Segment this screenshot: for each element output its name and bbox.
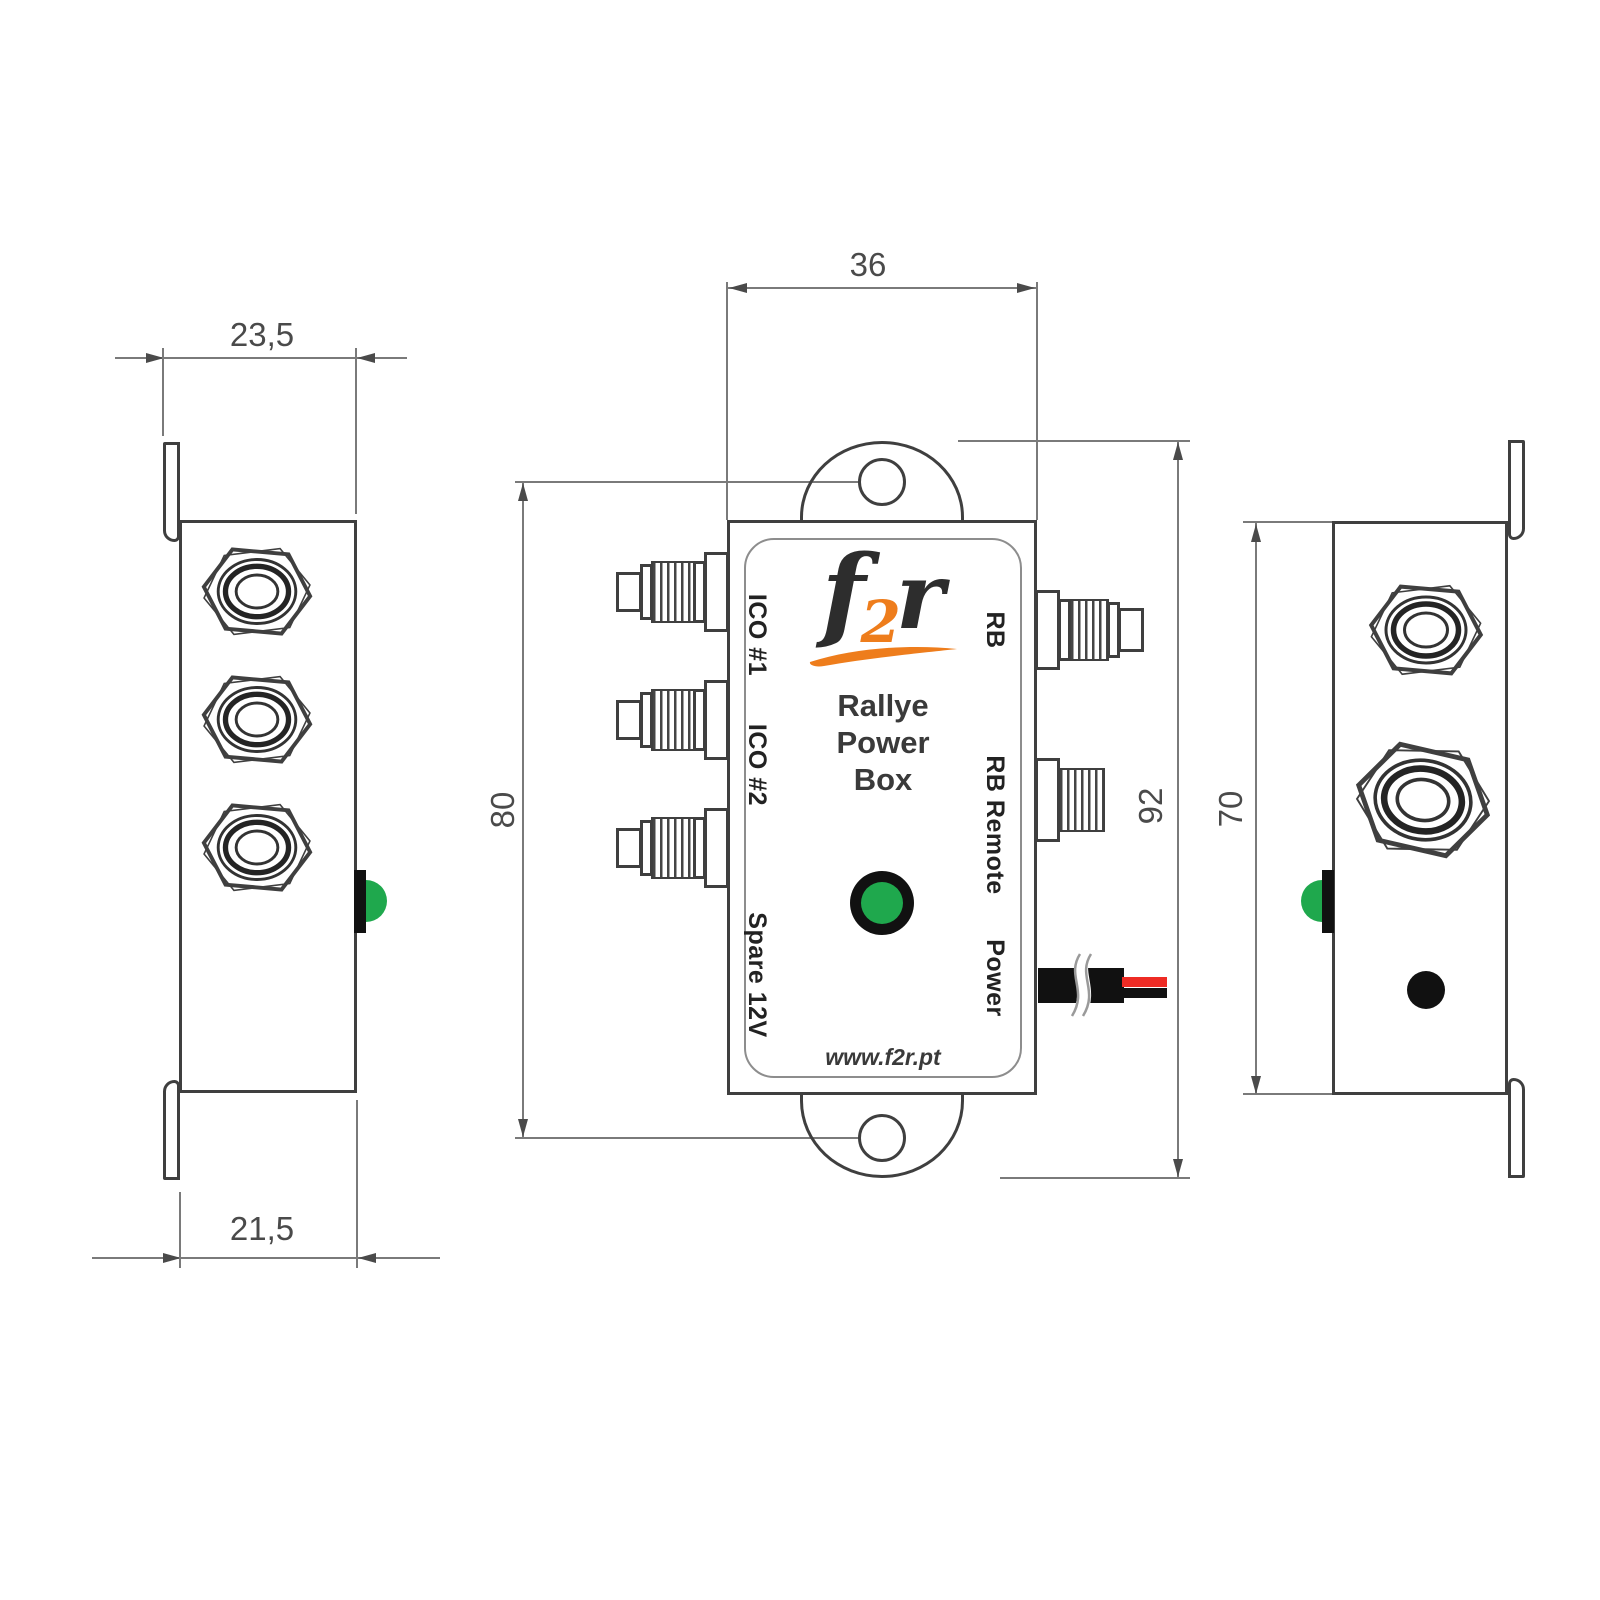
- led-indicator: [1301, 880, 1322, 922]
- dim-bodyheight-line: [1255, 523, 1257, 1095]
- connector-ico2-nut: [704, 680, 729, 760]
- connector-ico1-tip: [616, 572, 642, 612]
- product-name-line1: Rallye: [783, 688, 983, 724]
- connector-spare-nut: [704, 808, 729, 888]
- port-label-ico2: ICO #2: [745, 695, 771, 835]
- connector-spare-thread: [651, 817, 695, 879]
- dim-width-line: [727, 287, 1037, 289]
- dim-holespan-label: 80: [484, 760, 524, 860]
- mounting-hole-top: [858, 458, 906, 506]
- power-button: [861, 882, 903, 924]
- port-label-rb: RB: [983, 590, 1009, 670]
- connector-rb-tip: [1118, 608, 1144, 652]
- extension-line: [1000, 1177, 1190, 1179]
- dim-totalheight-label: 92: [1132, 756, 1172, 856]
- dim-arrow: [518, 1119, 528, 1137]
- technical-drawing: 23,5 21,5 36: [0, 0, 1600, 1600]
- brand-swoosh-icon: [806, 642, 961, 668]
- dim-width-label: 36: [808, 246, 928, 284]
- hex-nut-spare-side: [195, 799, 319, 896]
- brand-logo-r: r: [896, 550, 944, 642]
- mounting-hole-bottom: [858, 1114, 906, 1162]
- extension-line: [355, 348, 357, 514]
- mount-flange-tab-bottom: [163, 1080, 180, 1180]
- dim-arrow: [729, 283, 747, 293]
- product-name-line2: Power: [783, 725, 983, 761]
- mount-flange-tab-top: [1508, 440, 1525, 540]
- connector-ico1-thread: [651, 561, 695, 623]
- port-label-spare12v: Spare 12V: [745, 890, 771, 1060]
- port-label-ico1: ICO #1: [745, 565, 771, 705]
- cable-break-icon: [1060, 950, 1102, 1020]
- port-label-rb-remote: RB Remote: [983, 730, 1009, 920]
- extension-line: [958, 440, 1190, 442]
- website-text: www.f2r.pt: [783, 1044, 983, 1071]
- brand-logo-f: f: [822, 542, 866, 644]
- power-wire-negative: [1122, 988, 1167, 998]
- hex-nut-ico1-side: [195, 543, 319, 640]
- dim-depth-flange-label: 23,5: [202, 316, 322, 354]
- connector-rbremote-thread: [1058, 768, 1105, 832]
- product-name-line3: Box: [783, 762, 983, 798]
- connector-ico2-tip: [616, 700, 642, 740]
- connector-spare-tip: [616, 828, 642, 868]
- led-mount: [1322, 870, 1334, 933]
- extension-line: [1036, 282, 1038, 520]
- port-label-power: Power: [983, 918, 1009, 1038]
- dim-arrow: [1251, 524, 1261, 542]
- dim-depth-body-label: 21,5: [202, 1210, 322, 1248]
- connector-ico2-thread: [651, 689, 695, 751]
- extension-line: [162, 348, 164, 436]
- mount-flange-tab-top: [163, 442, 180, 542]
- dim-arrow: [518, 483, 528, 501]
- dim-arrow: [357, 353, 375, 363]
- hex-nut-rb-side: [1366, 577, 1486, 683]
- power-wire-positive: [1122, 977, 1167, 987]
- connector-ico1-nut: [704, 552, 729, 632]
- mount-flange-tab-bottom: [1508, 1078, 1525, 1178]
- hex-nut-ico2-side: [195, 671, 319, 768]
- extension-line: [356, 1100, 358, 1268]
- dim-arrow: [1017, 283, 1035, 293]
- dim-arrow: [358, 1253, 376, 1263]
- dim-totalheight-line: [1177, 441, 1179, 1178]
- dim-depth-body-line: [92, 1257, 440, 1259]
- cable-exit-dot: [1407, 971, 1445, 1009]
- led-indicator: [366, 880, 387, 922]
- connector-rb-nut: [1035, 590, 1060, 670]
- brand-logo: f 2 r: [783, 542, 983, 647]
- dim-arrow: [1173, 1159, 1183, 1177]
- extension-line: [179, 1192, 181, 1268]
- hex-nut-rbremote-side: [1343, 729, 1503, 872]
- connector-rbremote-nut: [1035, 758, 1060, 842]
- dim-arrow: [1173, 442, 1183, 460]
- led-mount: [354, 870, 366, 933]
- dim-arrow: [1251, 1076, 1261, 1094]
- dim-bodyheight-label: 70: [1212, 759, 1252, 859]
- extension-line: [726, 282, 728, 520]
- connector-rb-thread: [1069, 599, 1109, 661]
